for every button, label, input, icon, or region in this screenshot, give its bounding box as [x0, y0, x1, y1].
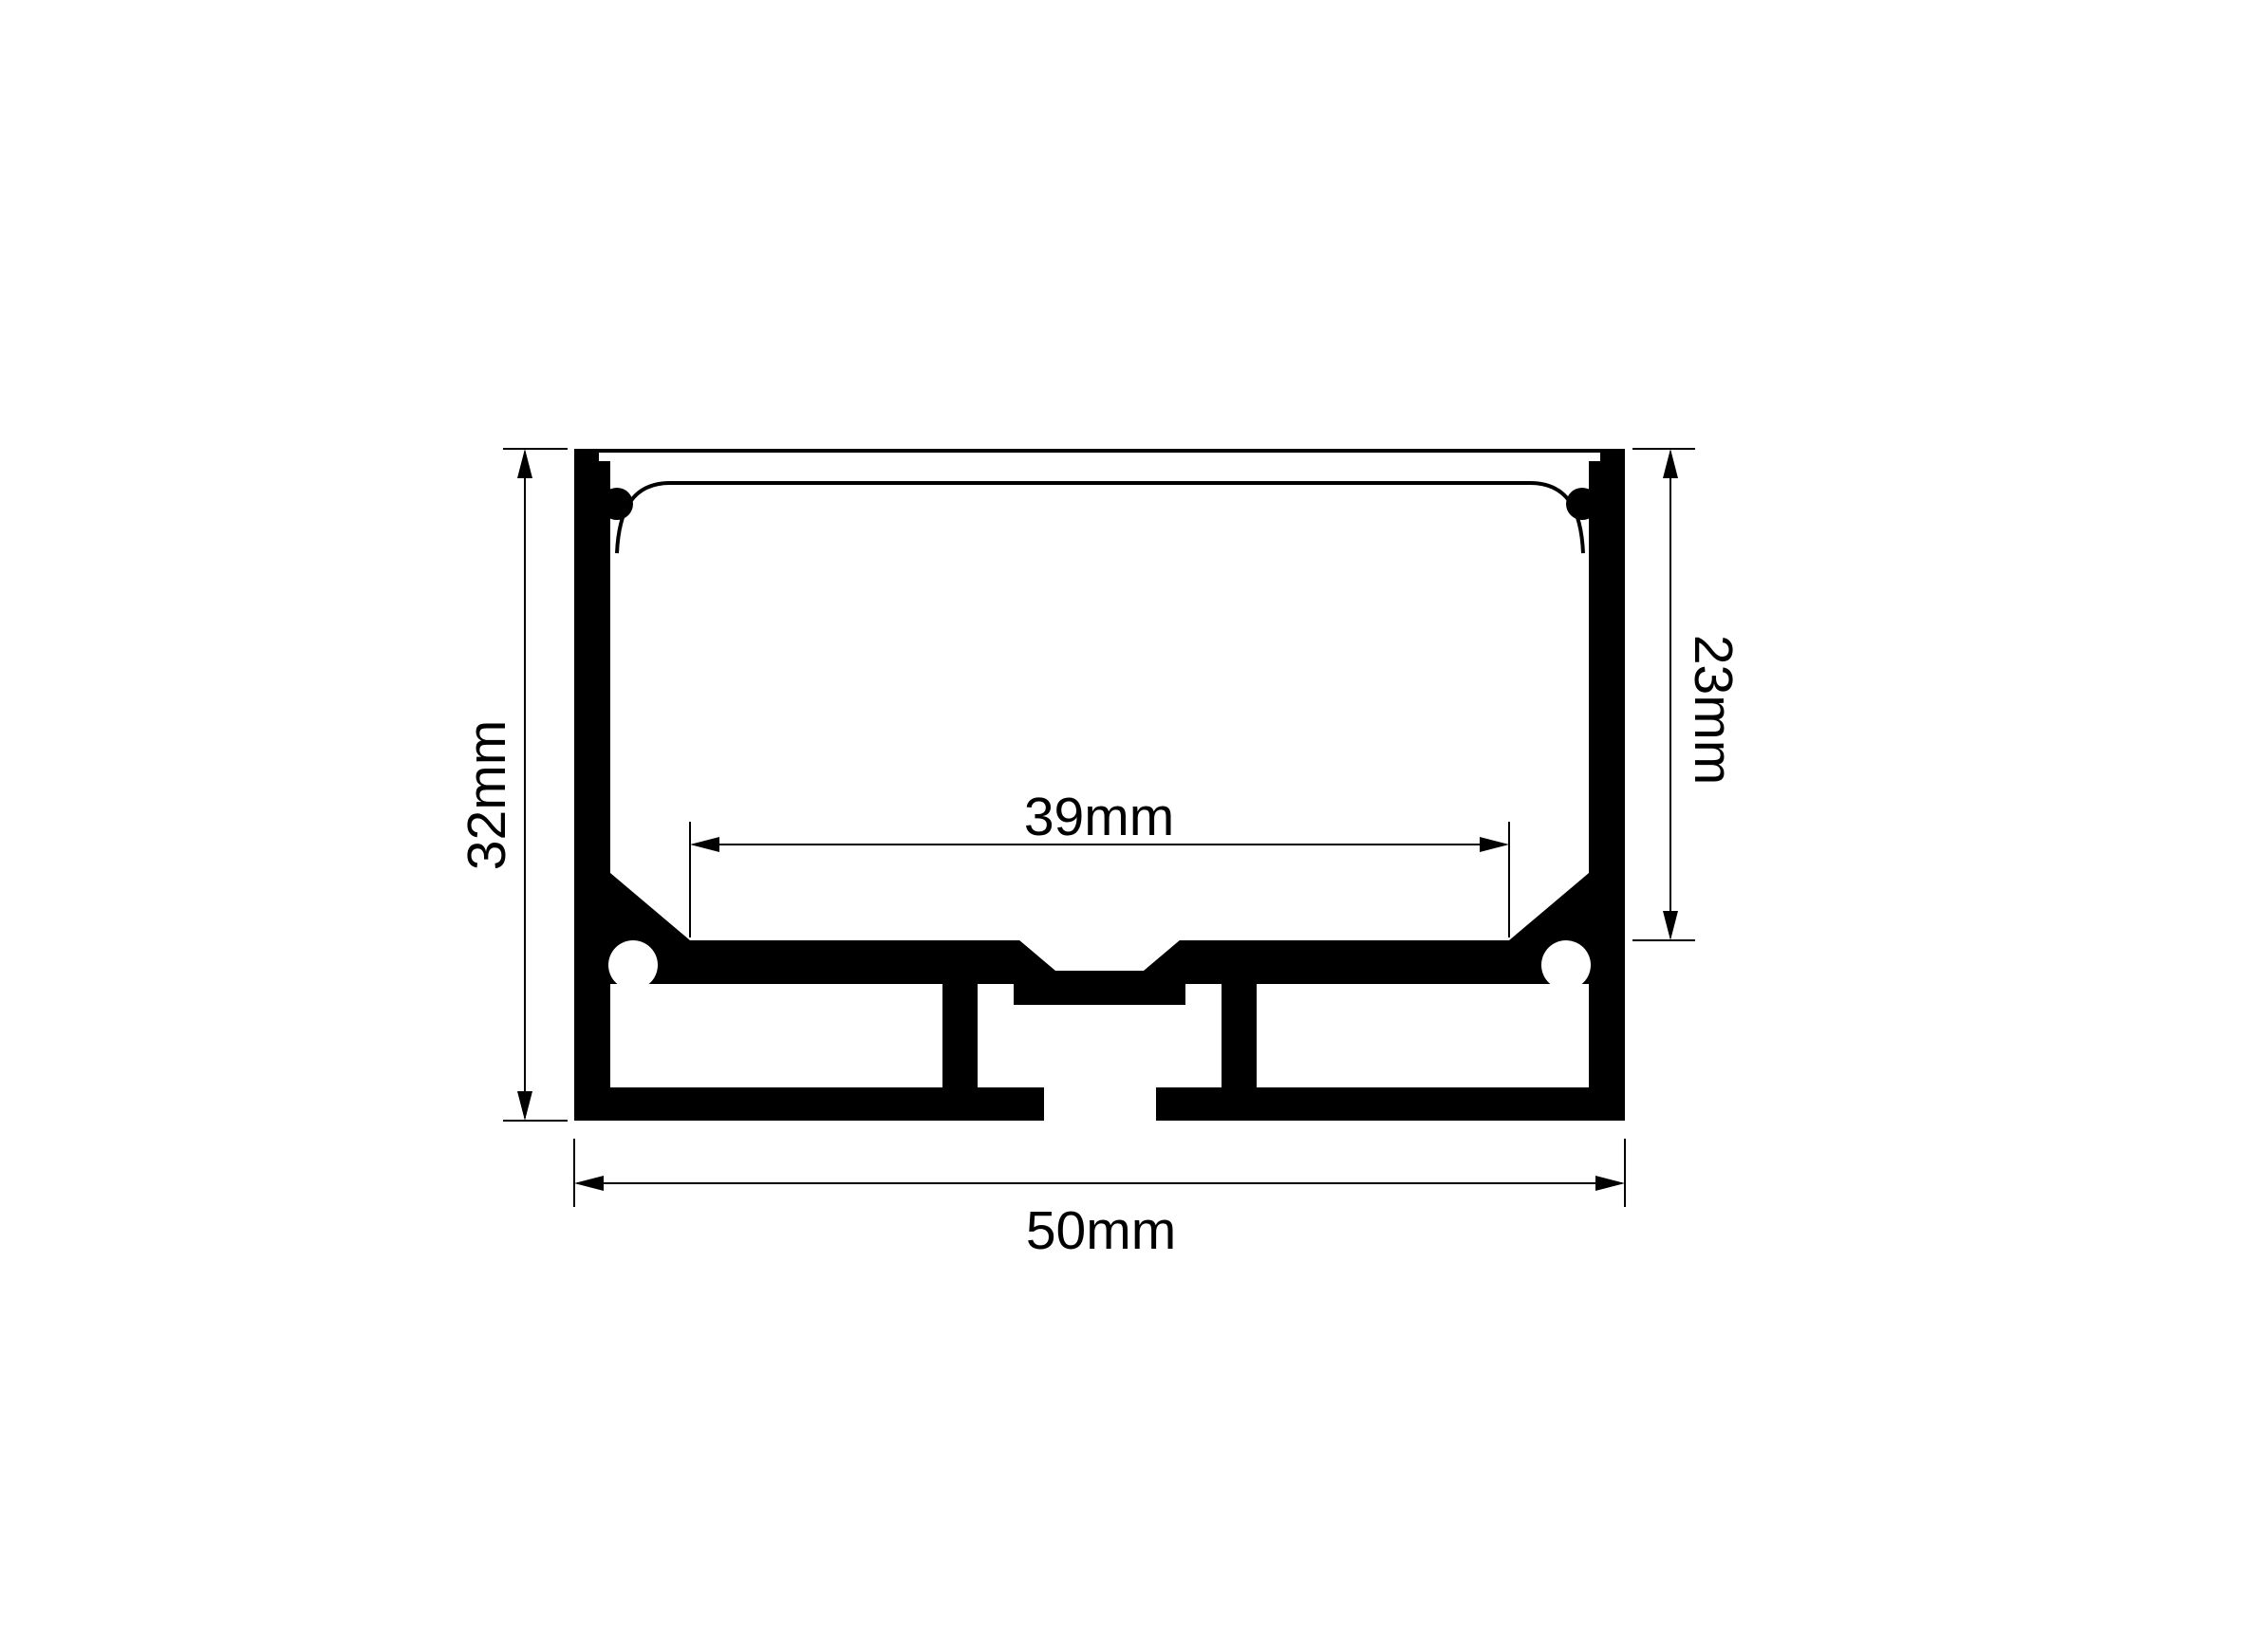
arrowhead-right-icon	[1595, 1176, 1625, 1191]
support-leg-right	[1222, 984, 1257, 1087]
profile-drawing: 32mm 23mm 39mm 50mm	[0, 0, 2257, 1652]
profile-cross-section	[574, 449, 1625, 1122]
dim-label-overall-height: 32mm	[457, 720, 517, 870]
screw-port-right-notch	[1557, 979, 1583, 1006]
dim-label-inner-depth: 23mm	[1683, 635, 1744, 785]
cover-notch-right	[1588, 453, 1600, 461]
arrowhead-up-icon	[1663, 449, 1678, 478]
support-leg-left	[942, 984, 978, 1087]
main-cavity	[610, 453, 1589, 940]
arrowhead-up-icon	[517, 449, 532, 478]
screw-port-left-notch	[616, 979, 643, 1006]
dim-label-inner-width: 39mm	[1024, 787, 1174, 847]
arrowhead-down-icon	[517, 1091, 532, 1121]
drawing-canvas: 32mm 23mm 39mm 50mm	[0, 0, 2257, 1652]
arrowhead-down-icon	[1663, 911, 1678, 940]
arrowhead-left-icon	[574, 1176, 604, 1191]
dim-label-overall-width: 50mm	[1026, 1200, 1176, 1261]
bottom-slot	[1044, 1087, 1156, 1122]
cover-notch-left	[599, 453, 611, 461]
dimension-overall-width	[574, 1139, 1625, 1207]
